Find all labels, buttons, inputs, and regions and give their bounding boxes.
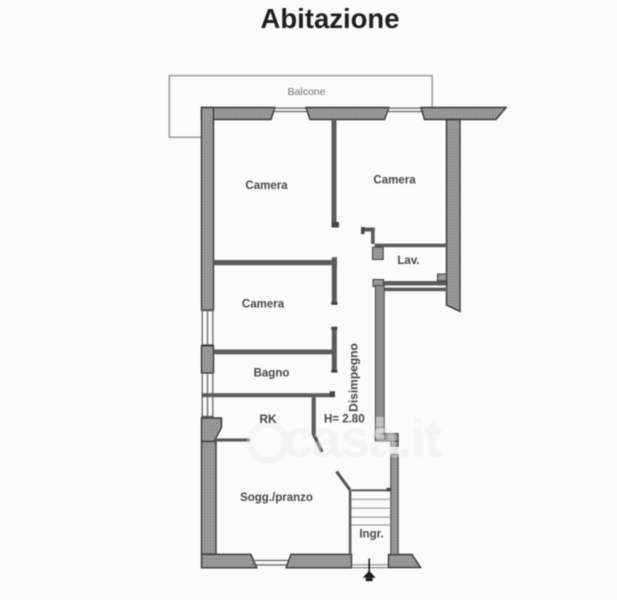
svg-text:Abitazione: Abitazione bbox=[260, 3, 399, 34]
svg-text:Disimpegno: Disimpegno bbox=[347, 343, 361, 412]
svg-text:Ingr.: Ingr. bbox=[359, 529, 383, 541]
svg-text:Camera: Camera bbox=[373, 175, 416, 187]
svg-text:Camera: Camera bbox=[242, 299, 285, 311]
svg-text:Balcone: Balcone bbox=[288, 86, 326, 98]
svg-text:H= 2.80: H= 2.80 bbox=[324, 414, 365, 426]
svg-text:Bagno: Bagno bbox=[254, 368, 290, 380]
svg-text:Sogg./pranzo: Sogg./pranzo bbox=[240, 492, 313, 504]
svg-text:Camera: Camera bbox=[245, 180, 288, 192]
svg-text:Lav.: Lav. bbox=[397, 255, 419, 267]
svg-text:RK: RK bbox=[259, 412, 277, 426]
